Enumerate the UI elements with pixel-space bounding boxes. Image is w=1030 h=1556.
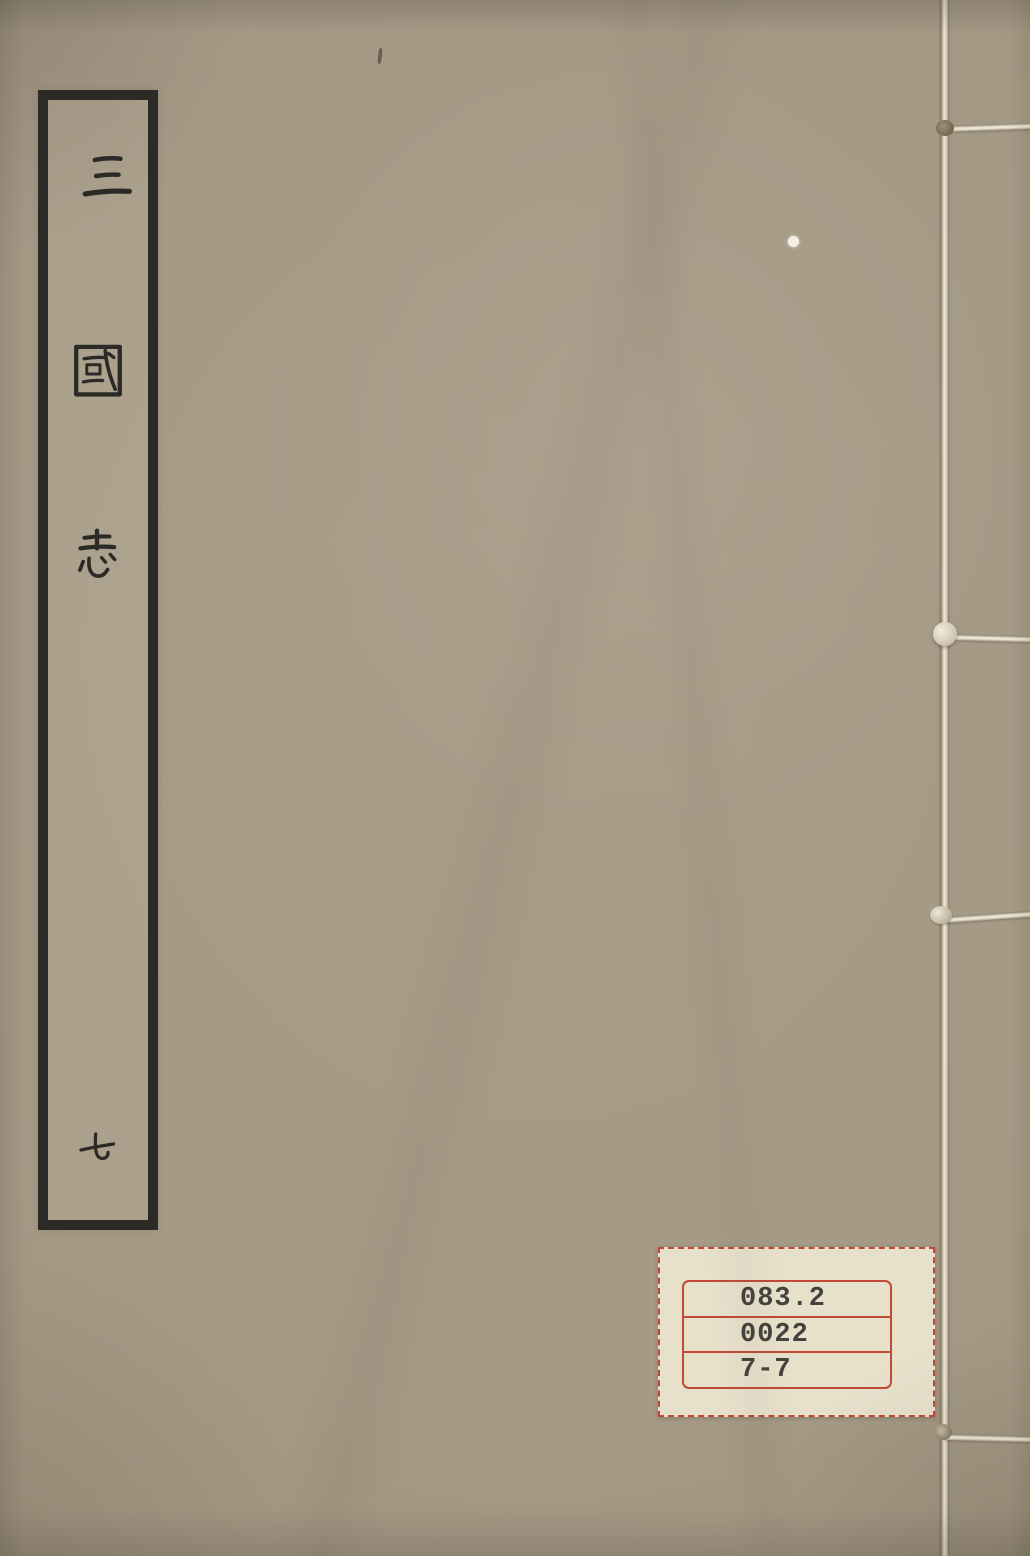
binding-knot-2 xyxy=(933,622,957,646)
title-character-zhi-glyph xyxy=(64,524,130,590)
call-number-line-2: 0022 xyxy=(684,1318,890,1354)
call-number-label: 083.2 0022 7-7 xyxy=(658,1247,935,1417)
title-slip: 三 國 志 xyxy=(38,90,158,1230)
call-number-box: 083.2 0022 7-7 xyxy=(682,1280,892,1389)
call-number-line-3: 7-7 xyxy=(684,1353,890,1387)
binding-stitch-2 xyxy=(945,634,1030,642)
binding-knot-1 xyxy=(936,120,954,136)
binding-stitch-3 xyxy=(945,911,1030,923)
volume-character-qi: 七 xyxy=(75,1127,121,1173)
paper-white-spot xyxy=(788,236,799,247)
binding-knot-3 xyxy=(930,906,952,924)
title-character-guo-glyph xyxy=(65,337,131,403)
book-cover: 三 國 志 xyxy=(0,0,1030,1556)
title-character-zhi: 志 xyxy=(64,524,130,590)
binding-thread-vertical xyxy=(941,0,948,1556)
paper-speck xyxy=(377,48,383,64)
call-number-line-1: 083.2 xyxy=(684,1282,890,1318)
title-character-guo: 國 xyxy=(65,337,131,403)
volume-character-qi-glyph xyxy=(75,1127,121,1173)
binding-knot-4 xyxy=(934,1424,952,1440)
binding-stitch-1 xyxy=(945,123,1030,132)
binding-stitch-4 xyxy=(945,1434,1030,1442)
title-character-san: 三 xyxy=(75,144,139,208)
title-character-san-glyph xyxy=(75,144,139,208)
